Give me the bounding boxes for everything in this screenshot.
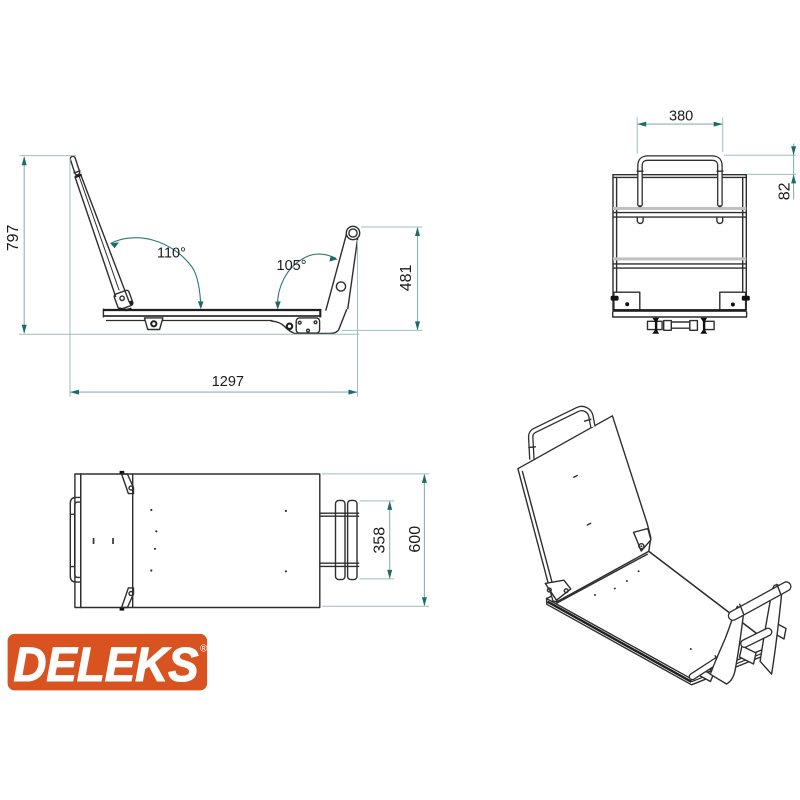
svg-text:105°: 105° [277, 258, 307, 274]
svg-text:358: 358 [372, 527, 389, 554]
svg-text:1297: 1297 [212, 374, 244, 390]
svg-text:600: 600 [407, 526, 424, 553]
svg-text:380: 380 [669, 108, 693, 124]
svg-text:DELEKS: DELEKS [14, 639, 199, 692]
svg-text:82: 82 [777, 182, 794, 200]
svg-text:®: ® [200, 644, 208, 655]
svg-text:797: 797 [5, 225, 22, 252]
svg-text:481: 481 [398, 265, 415, 292]
svg-text:110°: 110° [157, 246, 186, 262]
